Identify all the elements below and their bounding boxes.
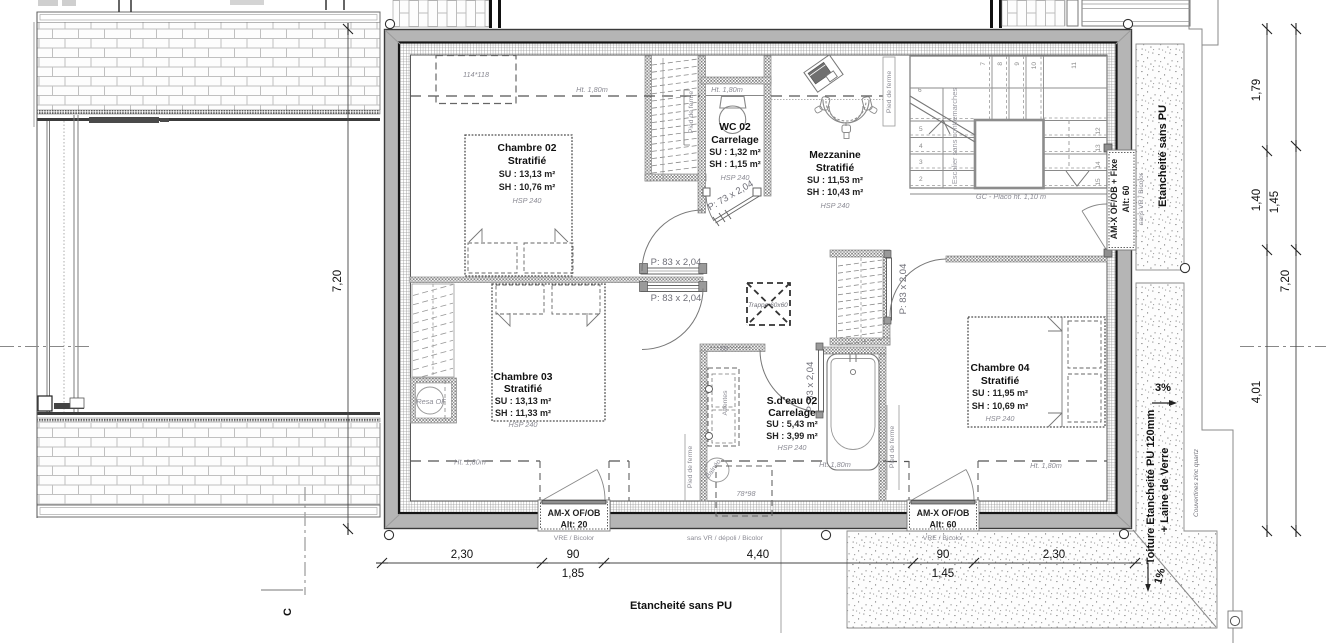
svg-text:15: 15 <box>1095 178 1102 186</box>
svg-text:Chambre 02: Chambre 02 <box>498 143 557 154</box>
svg-text:SH : 10,43 m²: SH : 10,43 m² <box>807 187 864 197</box>
svg-text:AM-X OF/OB + Fixe: AM-X OF/OB + Fixe <box>1109 159 1119 240</box>
svg-text:SU : 1,32 m²: SU : 1,32 m² <box>709 147 761 157</box>
svg-text:1,85: 1,85 <box>562 568 584 580</box>
svg-text:WC 02: WC 02 <box>719 122 751 133</box>
svg-text:2,30: 2,30 <box>451 549 473 561</box>
svg-text:sans VR / Bicolor: sans VR / Bicolor <box>1138 172 1145 225</box>
svg-text:78*98: 78*98 <box>736 489 756 498</box>
svg-text:6: 6 <box>918 87 922 94</box>
svg-text:P: 83 x 2,04: P: 83 x 2,04 <box>651 257 702 268</box>
svg-text:Stratifié: Stratifié <box>816 163 855 174</box>
svg-text:C: C <box>282 608 294 616</box>
svg-text:2,30: 2,30 <box>1043 549 1065 561</box>
svg-text:AM-X OF/OB: AM-X OF/OB <box>548 508 601 518</box>
svg-text:Pied de ferme: Pied de ferme <box>886 71 893 114</box>
svg-text:VRE / Bicolor: VRE / Bicolor <box>554 535 595 542</box>
svg-text:10: 10 <box>1031 62 1038 70</box>
svg-text:AM-X OF/OB: AM-X OF/OB <box>917 508 970 518</box>
svg-text:14: 14 <box>1095 161 1102 169</box>
svg-text:Chambre 03: Chambre 03 <box>494 372 553 383</box>
svg-text:11: 11 <box>1071 62 1078 69</box>
svg-text:90: 90 <box>937 549 950 561</box>
svg-text:GC - Placo ht. 1,10 m: GC - Placo ht. 1,10 m <box>976 192 1046 201</box>
svg-text:1,45: 1,45 <box>932 568 954 580</box>
svg-text:5: 5 <box>919 126 923 133</box>
svg-text:Etancheité sans PU: Etancheité sans PU <box>630 600 732 612</box>
svg-text:Carrelage: Carrelage <box>768 408 816 419</box>
svg-text:Chambre 04: Chambre 04 <box>971 363 1030 374</box>
svg-text:P: 83 x 2,04: P: 83 x 2,04 <box>651 293 702 304</box>
svg-text:HSP 240: HSP 240 <box>509 420 538 429</box>
svg-text:S.d'eau 02: S.d'eau 02 <box>767 396 818 407</box>
svg-text:SH : 1,15 m²: SH : 1,15 m² <box>709 159 761 169</box>
svg-text:SH : 10,76 m²: SH : 10,76 m² <box>499 182 556 192</box>
svg-text:8: 8 <box>997 62 1004 66</box>
svg-text:+ Laine de Verre: + Laine de Verre <box>1159 448 1171 533</box>
svg-text:13: 13 <box>1095 144 1102 152</box>
svg-text:Ht. 1,80m: Ht. 1,80m <box>711 85 743 94</box>
svg-text:Ht. 1,80m: Ht. 1,80m <box>454 458 486 467</box>
svg-text:sans VR / dépoli / Bicolor: sans VR / dépoli / Bicolor <box>687 535 764 542</box>
svg-text:12: 12 <box>1095 127 1102 135</box>
svg-text:Toiture Etancheité PU 120mm: Toiture Etancheité PU 120mm <box>1145 410 1157 565</box>
svg-text:7: 7 <box>980 62 987 66</box>
svg-text:Stratifié: Stratifié <box>504 384 543 395</box>
svg-text:3%: 3% <box>1155 382 1171 394</box>
svg-text:7,20: 7,20 <box>332 270 344 292</box>
svg-text:Couvertines zinc quartz: Couvertines zinc quartz <box>1193 448 1200 517</box>
svg-text:Alt: 20: Alt: 20 <box>561 520 588 530</box>
svg-text:SU : 11,53 m²: SU : 11,53 m² <box>807 175 863 185</box>
svg-text:7,20: 7,20 <box>1280 270 1292 292</box>
svg-text:Etancheité sans PU: Etancheité sans PU <box>1157 105 1169 207</box>
svg-text:Alt: 60: Alt: 60 <box>1121 185 1131 212</box>
svg-text:SH : 11,33 m²: SH : 11,33 m² <box>495 408 551 418</box>
svg-text:114*118: 114*118 <box>463 70 490 79</box>
svg-text:9: 9 <box>1014 62 1021 66</box>
svg-text:HSP 240: HSP 240 <box>513 196 542 205</box>
svg-text:4: 4 <box>919 143 923 150</box>
svg-text:P: 83 x 2,04: P: 83 x 2,04 <box>898 264 909 315</box>
svg-text:Stratifié: Stratifié <box>508 156 547 167</box>
svg-text:3: 3 <box>919 159 923 166</box>
svg-text:Carrelage: Carrelage <box>711 135 759 146</box>
svg-text:1,45: 1,45 <box>1269 191 1281 213</box>
svg-text:Ht. 1,80m: Ht. 1,80m <box>819 460 851 469</box>
svg-text:SU : 11,95 m²: SU : 11,95 m² <box>972 388 1028 398</box>
svg-text:HSP 240: HSP 240 <box>821 201 850 210</box>
svg-text:Pied de ferme: Pied de ferme <box>688 91 695 134</box>
svg-text:SU : 5,43 m²: SU : 5,43 m² <box>766 419 818 429</box>
svg-text:Ht. 1,80m: Ht. 1,80m <box>1030 461 1062 470</box>
svg-text:90: 90 <box>567 549 580 561</box>
svg-text:SH : 3,99 m²: SH : 3,99 m² <box>766 431 818 441</box>
svg-text:Resa OF: Resa OF <box>416 397 446 406</box>
svg-text:SU : 13,13 m²: SU : 13,13 m² <box>499 169 556 179</box>
svg-text:4,40: 4,40 <box>747 549 769 561</box>
svg-text:Pied de ferme: Pied de ferme <box>687 446 694 489</box>
svg-text:Escalier sans contremarches: Escalier sans contremarches <box>950 88 959 185</box>
svg-text:1,40: 1,40 <box>1251 189 1263 211</box>
svg-text:SB: SB <box>719 346 729 353</box>
svg-text:VRE / Bicolor: VRE / Bicolor <box>923 535 964 542</box>
svg-text:SU : 13,13 m²: SU : 13,13 m² <box>495 396 552 406</box>
svg-text:SH : 10,69 m²: SH : 10,69 m² <box>972 401 1029 411</box>
svg-text:Mezzanine: Mezzanine <box>809 150 861 161</box>
svg-text:Ht. 1,80m: Ht. 1,80m <box>576 85 608 94</box>
svg-text:4,01: 4,01 <box>1251 381 1263 403</box>
svg-text:2: 2 <box>919 176 923 183</box>
svg-text:Alt: 60: Alt: 60 <box>930 520 957 530</box>
svg-text:Stratifié: Stratifié <box>981 376 1020 387</box>
svg-text:HSP 240: HSP 240 <box>986 414 1015 423</box>
svg-text:Pied de ferme: Pied de ferme <box>889 426 896 469</box>
svg-text:1,79: 1,79 <box>1251 79 1263 101</box>
svg-text:Trappe 60x60: Trappe 60x60 <box>748 302 788 309</box>
svg-text:Attentes: Attentes <box>722 390 729 416</box>
svg-text:HSP 240: HSP 240 <box>778 443 807 452</box>
